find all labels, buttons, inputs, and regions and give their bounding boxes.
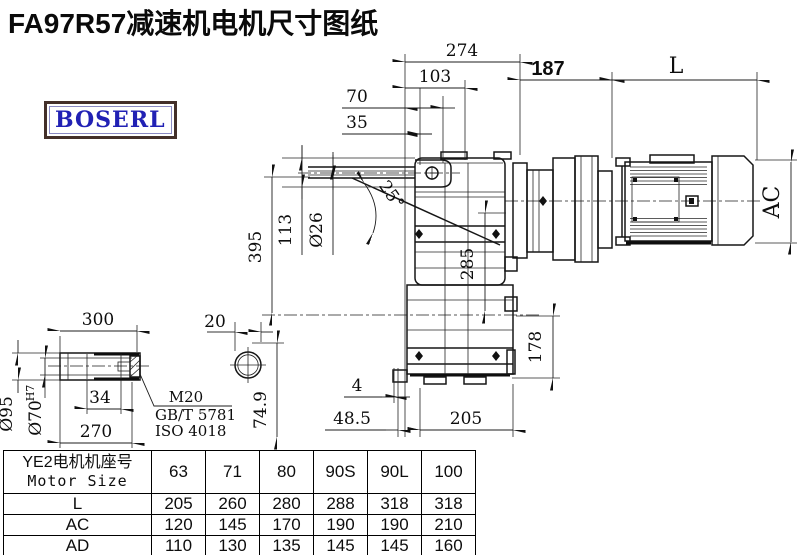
cell: 288	[314, 494, 368, 515]
table-row: L 205 260 280 288 318 318	[4, 494, 476, 515]
dim-103: 103	[419, 67, 451, 87]
col-header: 63	[152, 451, 206, 494]
cell: 205	[152, 494, 206, 515]
dim-4: 4	[352, 376, 363, 396]
col-header: 90S	[314, 451, 368, 494]
col-header: 100	[422, 451, 476, 494]
table-header-motor-size: YE2电机机座号 Motor Size	[4, 451, 152, 494]
cell: 318	[422, 494, 476, 515]
header-cn: YE2电机机座号	[4, 453, 151, 472]
dim-48-5: 48.5	[333, 409, 371, 429]
col-header: 90L	[368, 451, 422, 494]
cell: 160	[422, 536, 476, 555]
table-row: AC 120 145 170 190 190 210	[4, 515, 476, 536]
dim-dia70-tolerance: H7	[24, 385, 37, 402]
dim-20: 20	[204, 312, 226, 332]
dim-dia95: Ø95	[0, 396, 17, 432]
cell: 130	[206, 536, 260, 555]
header-en: Motor Size	[4, 472, 151, 491]
dim-AC: AC	[760, 186, 785, 220]
cell: 145	[206, 515, 260, 536]
dimensions-left: 395 113 Ø26 25°	[246, 145, 408, 313]
motor-size-table: YE2电机机座号 Motor Size 63 71 80 90S 90L 100…	[3, 450, 476, 555]
cell: 318	[368, 494, 422, 515]
row-label: L	[4, 494, 152, 515]
cell: 110	[152, 536, 206, 555]
cell: 135	[260, 536, 314, 555]
dim-270: 270	[80, 422, 112, 442]
cell: 260	[206, 494, 260, 515]
label-std-iso: ISO 4018	[155, 422, 226, 440]
page: FA97R57减速机电机尺寸图纸 BOSERL	[0, 0, 800, 555]
dim-205: 205	[450, 409, 482, 429]
dim-L: L	[669, 54, 684, 79]
dim-34: 34	[89, 388, 111, 408]
dim-74-9: 74.9	[251, 391, 271, 429]
cell: 145	[314, 536, 368, 555]
dim-300: 300	[82, 310, 114, 330]
dim-187: 187	[531, 58, 564, 80]
col-header: 80	[260, 451, 314, 494]
cell: 280	[260, 494, 314, 515]
cell: 170	[260, 515, 314, 536]
dim-178: 178	[526, 331, 546, 363]
cell: 210	[422, 515, 476, 536]
table-header-row: YE2电机机座号 Motor Size 63 71 80 90S 90L 100	[4, 451, 476, 494]
row-label: AD	[4, 536, 152, 555]
dim-35: 35	[346, 113, 368, 133]
dim-274: 274	[446, 41, 478, 61]
dim-285: 285	[458, 248, 478, 280]
row-label: AC	[4, 515, 152, 536]
table-row: AD 110 130 135 145 145 160	[4, 536, 476, 555]
dimensions-top: 274 103 70 35 187 L AC	[342, 41, 791, 242]
cell: 120	[152, 515, 206, 536]
hollow-shaft-detail: 300 Ø95 Ø70 H7 34 270 M20 GB/T 5781 ISO …	[0, 310, 236, 448]
dim-angle-25: 25°	[374, 177, 408, 213]
label-thread-m20: M20	[169, 388, 203, 406]
dim-113: 113	[276, 214, 296, 246]
cell: 190	[368, 515, 422, 536]
dim-70: 70	[346, 87, 368, 107]
dimension-drawing: 274 103 70 35 187 L AC 395 113	[0, 0, 800, 450]
cell: 145	[368, 536, 422, 555]
dim-395: 395	[246, 231, 266, 263]
dim-dia70: Ø70	[26, 400, 46, 436]
motor-adapter-view	[513, 156, 612, 262]
col-header: 71	[206, 451, 260, 494]
cell: 190	[314, 515, 368, 536]
dim-dia26: Ø26	[307, 212, 327, 248]
